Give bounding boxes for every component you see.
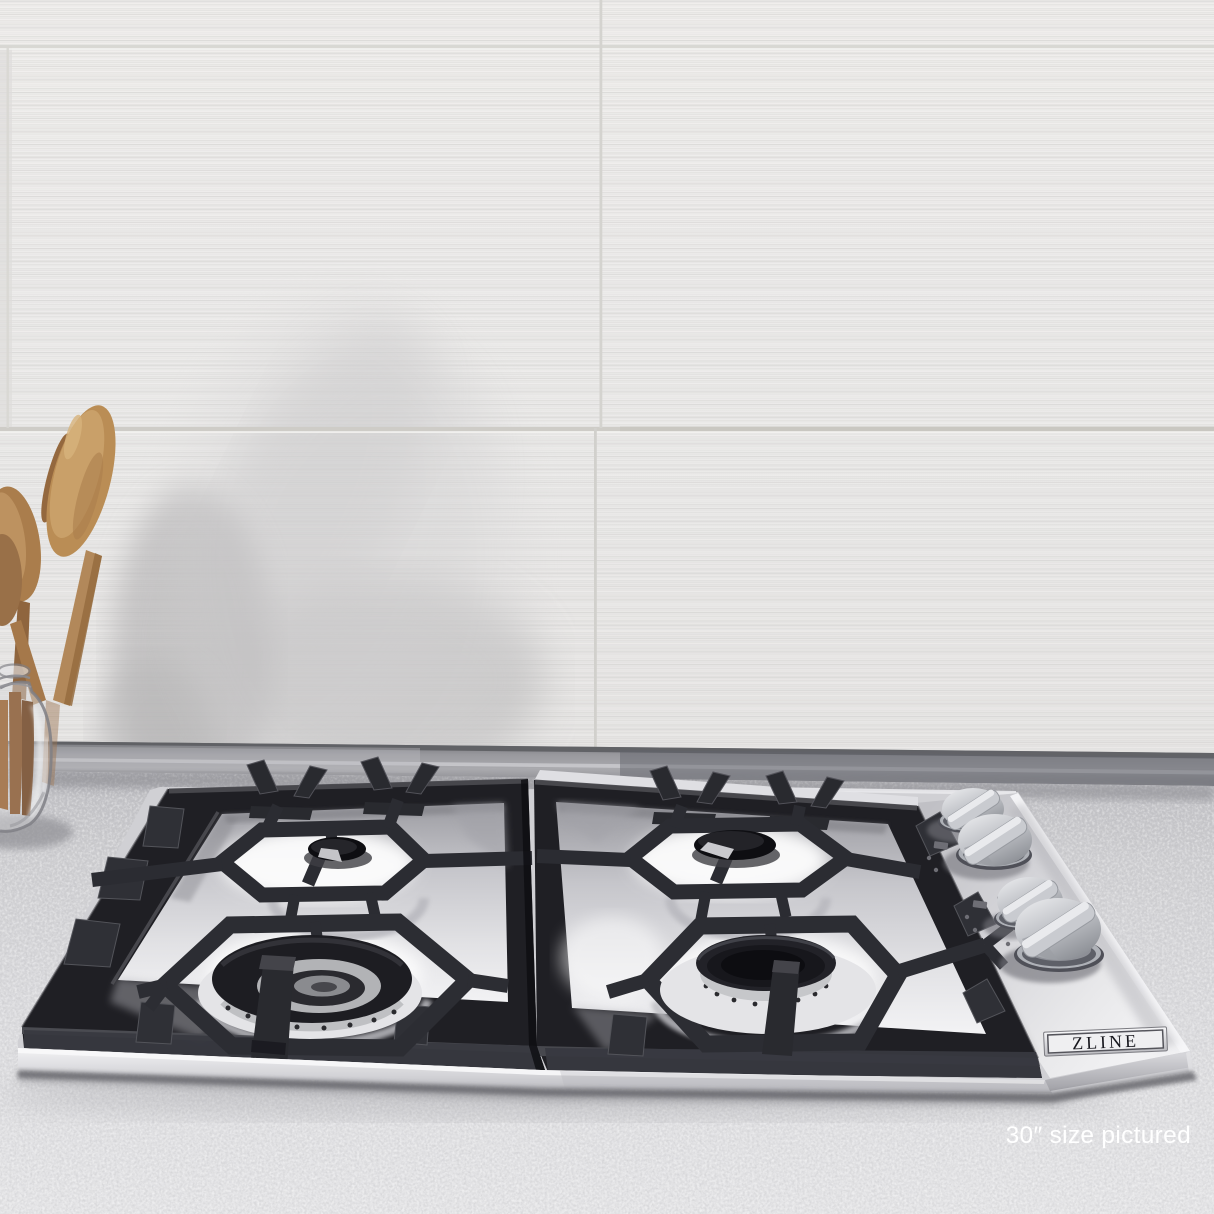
svg-text:30″ size pictured: 30″ size pictured (1006, 1122, 1191, 1149)
svg-text:ZLINE: ZLINE (1072, 1031, 1140, 1054)
